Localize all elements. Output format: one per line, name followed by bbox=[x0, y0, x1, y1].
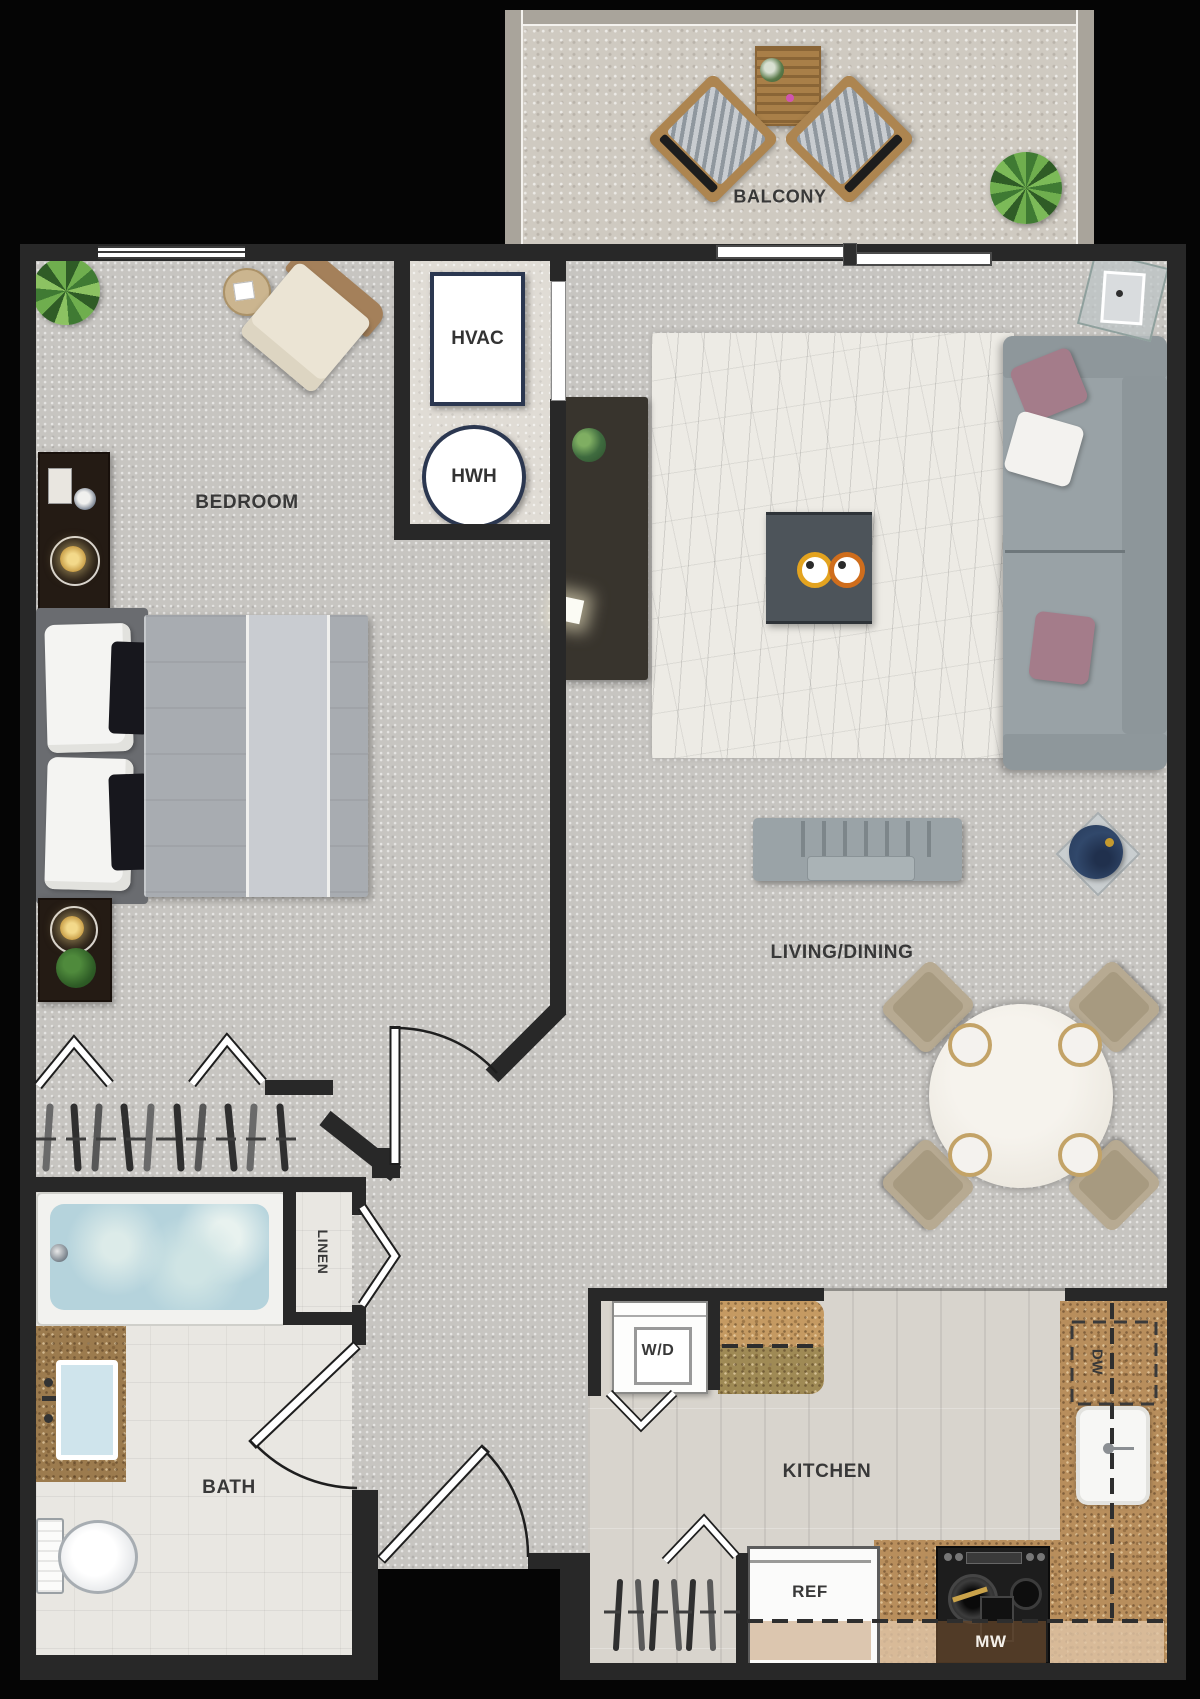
label-microwave: MW bbox=[975, 1632, 1006, 1652]
label-refrigerator: REF bbox=[792, 1582, 828, 1602]
linen-door-outline bbox=[362, 1207, 395, 1305]
washer-dryer-door-fold-outline bbox=[609, 1393, 674, 1426]
label-living-dining: LIVING/DINING bbox=[771, 942, 914, 964]
bedroom-door-arc bbox=[395, 1028, 497, 1073]
label-kitchen: KITCHEN bbox=[783, 1461, 872, 1483]
bedroom-closet-door-2-outline bbox=[192, 1040, 263, 1084]
label-washer-dryer: W/D bbox=[642, 1342, 675, 1360]
bath-door-leaf bbox=[254, 1346, 356, 1443]
label-dishwasher: DW bbox=[1089, 1349, 1106, 1375]
label-linen: LINEN bbox=[315, 1230, 331, 1275]
bath-door-arc bbox=[254, 1443, 357, 1488]
entry-door-leaf bbox=[382, 1450, 484, 1559]
label-bedroom: BEDROOM bbox=[195, 492, 298, 514]
label-bath: BATH bbox=[202, 1477, 256, 1499]
label-balcony: BALCONY bbox=[733, 187, 826, 208]
coat-closet-clothes bbox=[616, 1582, 713, 1648]
plan-linework bbox=[0, 0, 1200, 1699]
bedroom-closet-door-1-outline bbox=[38, 1042, 110, 1086]
floor-plan: HVAC HWH bbox=[0, 0, 1200, 1699]
entry-door-arc bbox=[484, 1450, 528, 1557]
wall-diagonal-living bbox=[492, 1008, 560, 1076]
